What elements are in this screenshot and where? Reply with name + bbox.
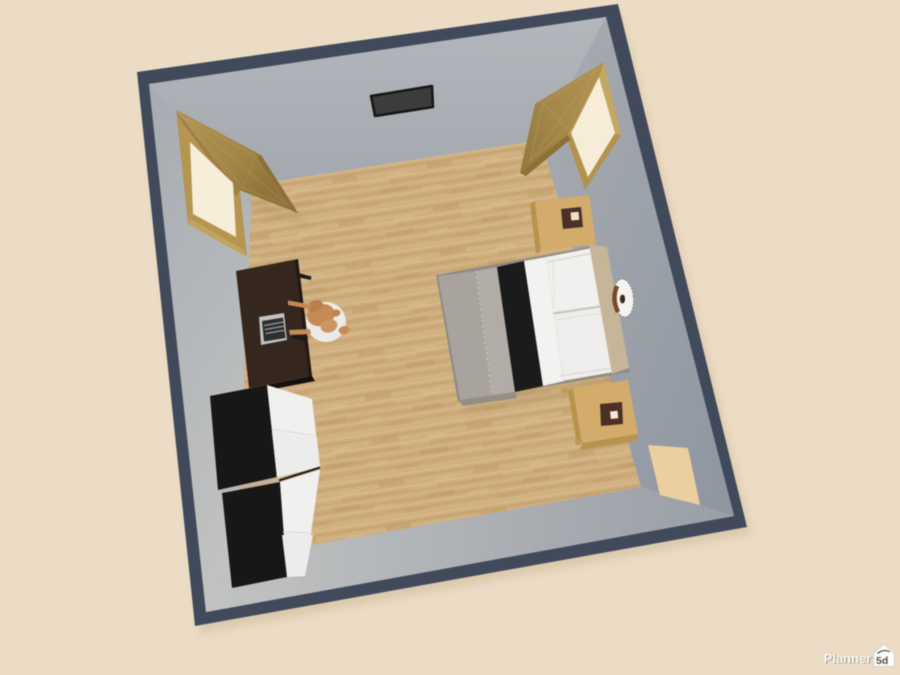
svg-text:5d: 5d: [876, 655, 888, 667]
svg-text:Planner: Planner: [824, 651, 872, 666]
